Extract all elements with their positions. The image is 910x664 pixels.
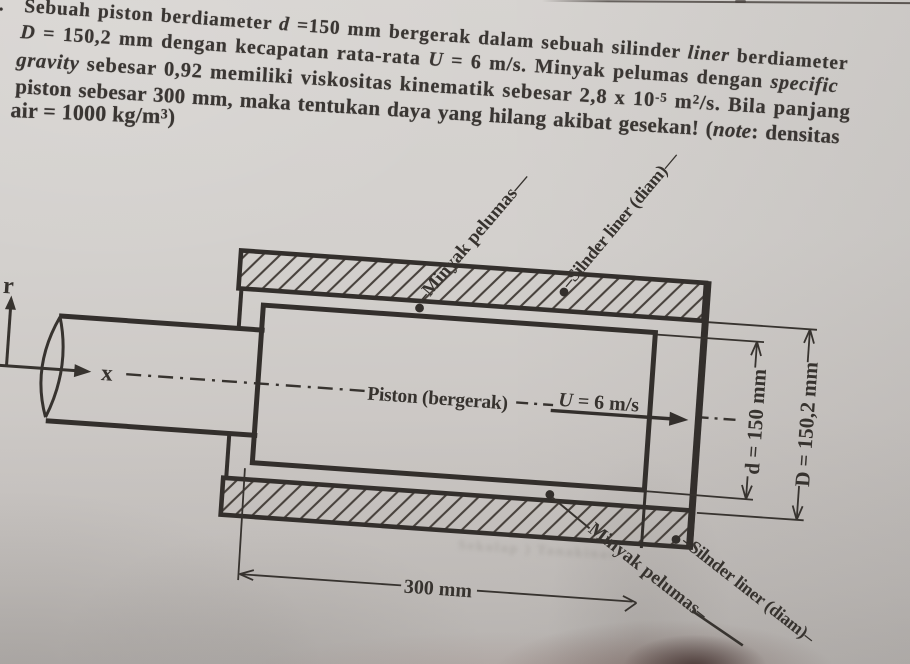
svg-text:–Silnder liner (diam)—: –Silnder liner (diam)— (556, 147, 684, 294)
svg-text:d = 150 mm: d = 150 mm (740, 368, 771, 476)
svg-text:–Silnder liner (diam)–: –Silnder liner (diam)– (677, 531, 820, 649)
svg-text:r: r (2, 273, 15, 300)
svg-text:D = 150,2 mm: D = 150,2 mm (790, 361, 823, 488)
svg-text:Piston (bergerak): Piston (bergerak) (367, 384, 509, 415)
svg-text:x: x (100, 360, 114, 386)
svg-text:300 mm: 300 mm (403, 576, 473, 603)
